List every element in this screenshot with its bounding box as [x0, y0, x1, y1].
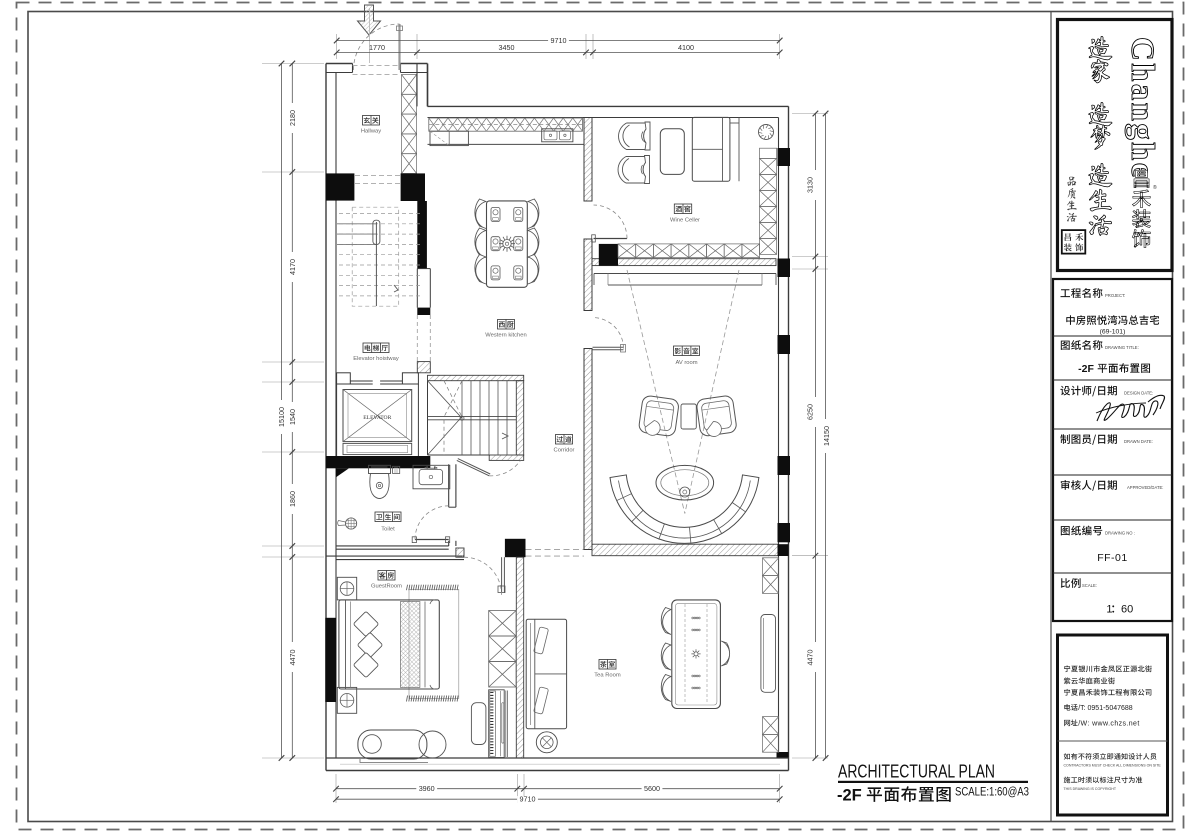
svg-text:DRAWING TITLE:: DRAWING TITLE: — [1105, 345, 1139, 350]
svg-text:PROJECT:: PROJECT: — [1105, 293, 1125, 298]
svg-text:9710: 9710 — [551, 36, 567, 45]
svg-text:FF-01: FF-01 — [1097, 552, 1128, 564]
svg-text:SCALE:: SCALE: — [1082, 583, 1097, 588]
svg-text:Elevator hoistway: Elevator hoistway — [353, 356, 399, 362]
svg-text:Wine Celler: Wine Celler — [670, 218, 700, 224]
svg-text:15100: 15100 — [277, 407, 286, 427]
svg-text:(69-101): (69-101) — [1100, 329, 1126, 336]
svg-text:4100: 4100 — [678, 43, 694, 52]
svg-text:/W: www.chzs.net: /W: www.chzs.net — [1078, 721, 1140, 728]
svg-text:4470: 4470 — [805, 650, 814, 666]
svg-text:/T: 0951-5047688: /T: 0951-5047688 — [1078, 705, 1133, 712]
svg-text:3130: 3130 — [805, 177, 814, 193]
svg-text:-2F: -2F — [1078, 363, 1094, 375]
svg-text:-2F: -2F — [837, 787, 862, 805]
svg-text:ARCHITECTURAL PLAN: ARCHITECTURAL PLAN — [838, 761, 995, 782]
svg-text:60: 60 — [1121, 604, 1133, 616]
svg-text:ELEVATOR: ELEVATOR — [363, 415, 391, 421]
svg-text:Tea Room: Tea Room — [594, 673, 621, 679]
svg-text:2180: 2180 — [288, 110, 297, 126]
svg-text:APPROVED/DATE:: APPROVED/DATE: — [1127, 485, 1163, 490]
svg-text:4170: 4170 — [288, 259, 297, 275]
svg-text:14150: 14150 — [822, 426, 831, 446]
svg-text:CONTRACTORS MUST CHECK ALL DIM: CONTRACTORS MUST CHECK ALL DIMENSIONS ON… — [1064, 764, 1162, 768]
svg-text:9710: 9710 — [520, 795, 536, 804]
svg-text:3450: 3450 — [499, 43, 515, 52]
svg-text:Hallway: Hallway — [361, 129, 381, 135]
svg-text:DESIGN DATE:: DESIGN DATE: — [1124, 391, 1153, 396]
svg-text:GuestRoom: GuestRoom — [371, 584, 402, 590]
svg-text:AV room: AV room — [675, 360, 697, 366]
svg-text:1860: 1860 — [288, 491, 297, 507]
svg-text:SCALE:1:60@A3: SCALE:1:60@A3 — [955, 787, 1029, 799]
svg-text:Corridor: Corridor — [554, 448, 575, 454]
svg-text:DRAWING NO :: DRAWING NO : — [1105, 531, 1135, 536]
svg-text:4470: 4470 — [288, 650, 297, 666]
svg-text:5600: 5600 — [644, 784, 660, 793]
svg-text:®: ® — [1153, 184, 1157, 191]
svg-text:1540: 1540 — [288, 409, 297, 425]
svg-text:3960: 3960 — [419, 784, 435, 793]
svg-text:THIS DRAWING IS COPYRIGHT: THIS DRAWING IS COPYRIGHT — [1064, 787, 1117, 791]
svg-text:Toilet: Toilet — [381, 527, 395, 533]
svg-text:6250: 6250 — [805, 404, 814, 420]
svg-text:DRAWN DATE:: DRAWN DATE: — [1124, 439, 1153, 444]
svg-text:1: 1 — [1106, 604, 1112, 616]
svg-text:Changhe: Changhe — [1124, 37, 1160, 180]
svg-text:Western kitchen: Western kitchen — [485, 333, 526, 339]
svg-text:1770: 1770 — [369, 43, 385, 52]
